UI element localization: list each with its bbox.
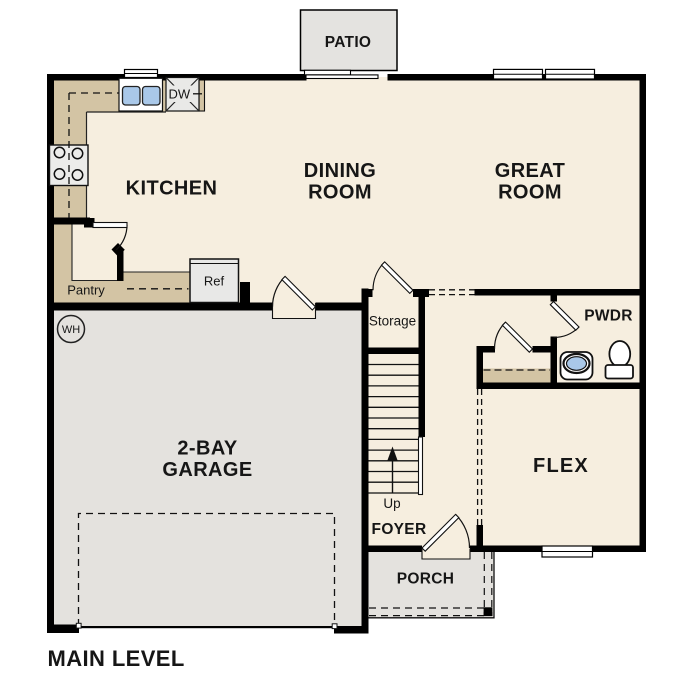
svg-text:PORCH: PORCH	[397, 571, 454, 588]
svg-text:FOYER: FOYER	[372, 521, 427, 538]
svg-text:DW: DW	[169, 87, 191, 102]
svg-text:GREAT: GREAT	[495, 160, 566, 182]
svg-text:DINING: DINING	[304, 160, 376, 182]
svg-text:PWDR: PWDR	[584, 308, 633, 325]
svg-text:Up: Up	[383, 496, 400, 511]
svg-text:ROOM: ROOM	[308, 182, 372, 204]
svg-text:MAIN LEVEL: MAIN LEVEL	[48, 646, 185, 671]
svg-text:PATIO: PATIO	[325, 34, 372, 51]
svg-text:Storage: Storage	[369, 314, 416, 329]
svg-text:Pantry: Pantry	[67, 283, 105, 298]
svg-text:GARAGE: GARAGE	[162, 459, 252, 481]
svg-text:Ref: Ref	[204, 274, 225, 289]
svg-text:ROOM: ROOM	[498, 182, 562, 204]
svg-text:WH: WH	[62, 324, 80, 336]
svg-text:KITCHEN: KITCHEN	[126, 178, 218, 200]
svg-text:2-BAY: 2-BAY	[177, 438, 237, 460]
svg-text:FLEX: FLEX	[533, 455, 589, 477]
